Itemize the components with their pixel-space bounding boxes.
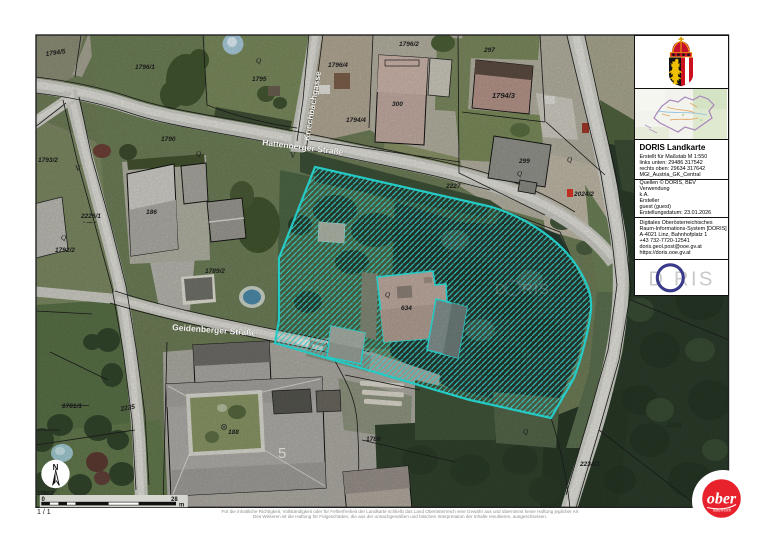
svg-text:ober: ober [707,491,737,508]
svg-text:1781/1: 1781/1 [62,403,82,410]
svg-text:Q: Q [567,156,572,164]
svg-text:1788: 1788 [366,436,381,443]
svg-text:297: 297 [483,47,495,54]
svg-text:- — -: - — - [83,220,96,226]
svg-text:1796/4: 1796/4 [328,62,348,69]
svg-text:Q: Q [517,170,522,178]
svg-text:634: 634 [401,305,412,312]
svg-text:Q: Q [523,428,528,436]
svg-text:1796/2: 1796/2 [399,41,419,48]
svg-text:1792/2: 1792/2 [55,247,75,254]
svg-text:Q: Q [385,291,390,299]
svg-text:2226/1: 2226/1 [80,213,101,220]
svg-text:Q: Q [196,150,201,158]
svg-text:2024/2: 2024/2 [573,191,594,198]
svg-text:österreich: österreich [713,508,732,513]
svg-text:1795: 1795 [252,76,267,83]
svg-text:188: 188 [228,429,239,436]
svg-text:1793/2: 1793/2 [38,157,58,164]
svg-text:1794/3: 1794/3 [492,91,516,100]
svg-text:Q: Q [256,57,261,65]
svg-text:2234/1: 2234/1 [579,461,600,468]
svg-text:300: 300 [392,101,403,108]
svg-text:1794/4: 1794/4 [346,117,366,124]
svg-text:186: 186 [146,209,157,216]
svg-text:V: V [290,151,296,160]
svg-text:2227: 2227 [445,183,461,190]
svg-text:Q: Q [61,234,66,242]
svg-text:1789/2: 1789/2 [205,268,225,275]
svg-text:V: V [75,164,81,173]
svg-text:1790: 1790 [161,136,176,143]
svg-text:299: 299 [518,158,530,165]
svg-text:5: 5 [278,445,286,462]
svg-text:2235: 2235 [666,422,682,429]
svg-text:1796/1: 1796/1 [135,64,155,71]
